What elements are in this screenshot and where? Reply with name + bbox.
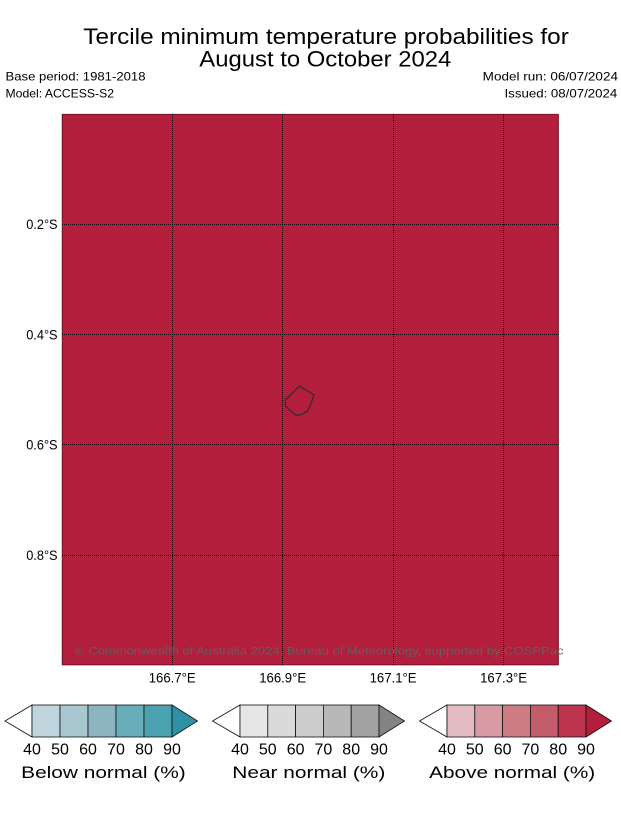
svg-text:© Commonwealth of Australia 20: © Commonwealth of Australia 2024, Bureau…	[75, 646, 564, 658]
svg-text:166.7°E: 166.7°E	[149, 670, 196, 686]
svg-text:0.8°S: 0.8°S	[26, 547, 57, 563]
svg-text:August to October 2024: August to October 2024	[199, 47, 451, 72]
svg-text:Near normal (%): Near normal (%)	[232, 764, 385, 782]
svg-text:40: 40	[438, 742, 456, 759]
svg-text:Above normal (%): Above normal (%)	[429, 764, 595, 782]
svg-text:60: 60	[494, 742, 512, 759]
svg-text:167.3°E: 167.3°E	[480, 670, 527, 686]
svg-text:Model run: 06/07/2024: Model run: 06/07/2024	[483, 70, 619, 84]
svg-text:60: 60	[79, 742, 97, 759]
svg-text:Base period: 1981-2018: Base period: 1981-2018	[6, 70, 146, 84]
svg-text:Below normal (%): Below normal (%)	[21, 764, 186, 782]
svg-text:0.4°S: 0.4°S	[26, 326, 57, 342]
svg-text:60: 60	[287, 742, 305, 759]
svg-text:70: 70	[522, 742, 540, 759]
svg-text:Issued: 08/07/2024: Issued: 08/07/2024	[505, 87, 618, 101]
svg-text:40: 40	[23, 742, 41, 759]
svg-text:90: 90	[163, 742, 181, 759]
svg-text:80: 80	[135, 742, 153, 759]
svg-text:70: 70	[107, 742, 125, 759]
svg-text:90: 90	[577, 742, 595, 759]
svg-text:166.9°E: 166.9°E	[259, 670, 306, 686]
svg-text:Model: ACCESS-S2: Model: ACCESS-S2	[6, 87, 115, 101]
svg-text:167.1°E: 167.1°E	[370, 670, 417, 686]
svg-text:80: 80	[342, 742, 360, 759]
svg-text:50: 50	[259, 742, 277, 759]
svg-text:0.2°S: 0.2°S	[26, 216, 57, 232]
svg-text:80: 80	[549, 742, 567, 759]
svg-text:50: 50	[466, 742, 484, 759]
svg-text:50: 50	[51, 742, 69, 759]
svg-text:90: 90	[370, 742, 388, 759]
svg-text:Tercile minimum temperature pr: Tercile minimum temperature probabilitie…	[83, 24, 569, 49]
svg-text:70: 70	[315, 742, 333, 759]
svg-text:0.6°S: 0.6°S	[26, 437, 57, 453]
svg-text:40: 40	[231, 742, 249, 759]
